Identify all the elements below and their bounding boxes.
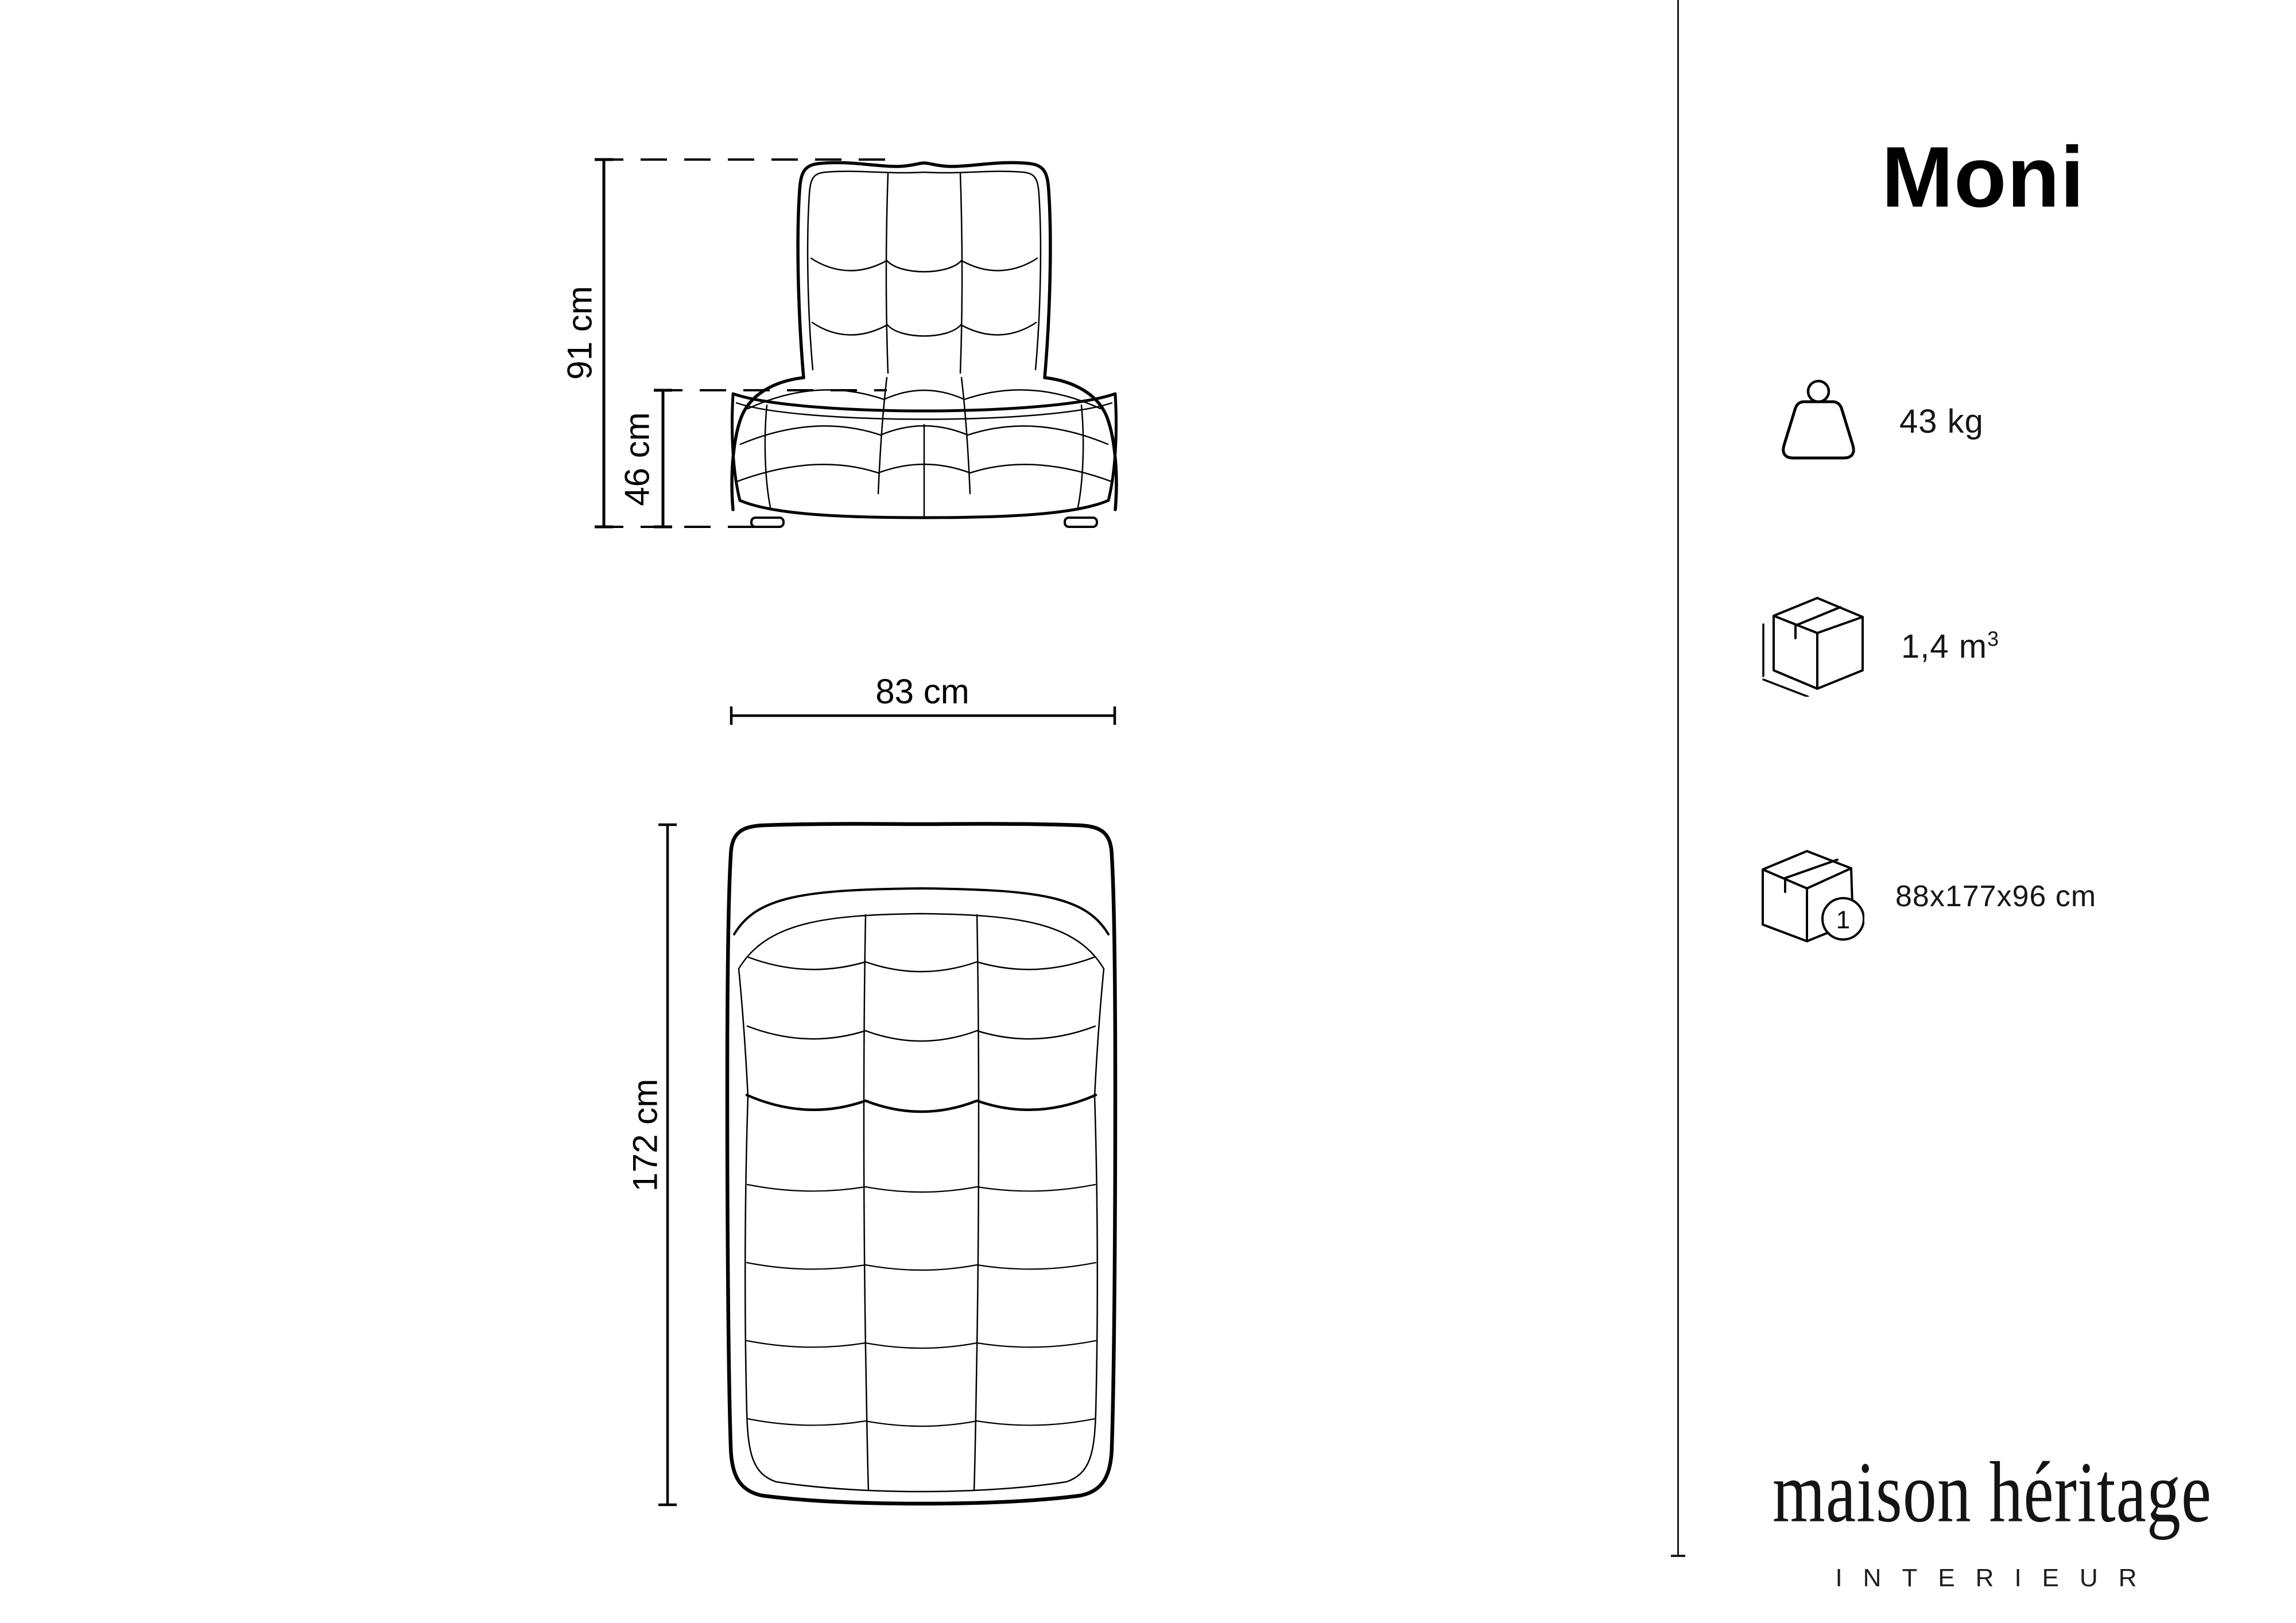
front-chair-tufting <box>735 171 1113 517</box>
front-chair-right-foot <box>1065 518 1097 527</box>
volume-unit-exponent: 3 <box>1987 627 1999 650</box>
product-title: Moni <box>1882 134 2085 220</box>
brand-logo: maison héritage INTERIEUR <box>1773 1461 2200 1593</box>
height-dimension-label: 91 cm <box>561 286 599 379</box>
spec-row-package: 1 88x177x96 cm <box>1758 847 2096 946</box>
volume-value: 1,4 m3 <box>1901 627 1999 666</box>
weight-icon <box>1777 379 1860 464</box>
seat-height-dimension-label: 46 cm <box>618 412 657 506</box>
top-chair-outline <box>727 824 1115 1504</box>
brand-name: maison héritage <box>1773 1449 2200 1536</box>
depth-dimension-label: 172 cm <box>626 1079 665 1192</box>
package-count-badge: 1 <box>1836 906 1850 934</box>
technical-drawings: 91 cm 46 cm <box>505 98 1217 1567</box>
spec-row-volume: 1,4 m3 <box>1762 596 1999 697</box>
spec-sheet-page: 91 cm 46 cm <box>0 0 2296 1623</box>
top-chair-tufting <box>747 915 1096 1490</box>
volume-box-icon <box>1762 596 1865 697</box>
package-box-icon: 1 <box>1758 847 1864 946</box>
width-dimension-label: 83 cm <box>875 673 969 711</box>
front-view-drawing: 91 cm 46 cm <box>561 160 1116 527</box>
panel-divider-line <box>1677 0 1679 1556</box>
brand-subtitle: INTERIEUR <box>1773 1564 2200 1593</box>
package-dimensions-value: 88x177x96 cm <box>1895 879 2096 914</box>
front-chair-left-foot <box>751 518 784 527</box>
weight-value: 43 kg <box>1899 402 1984 441</box>
panel-divider-end-tick <box>1671 1555 1685 1557</box>
top-view-drawing: 83 cm 172 cm <box>626 673 1116 1505</box>
spec-row-weight: 43 kg <box>1777 379 1984 464</box>
volume-number: 1,4 m <box>1901 628 1987 665</box>
seat-height-dimension-line <box>654 390 672 527</box>
